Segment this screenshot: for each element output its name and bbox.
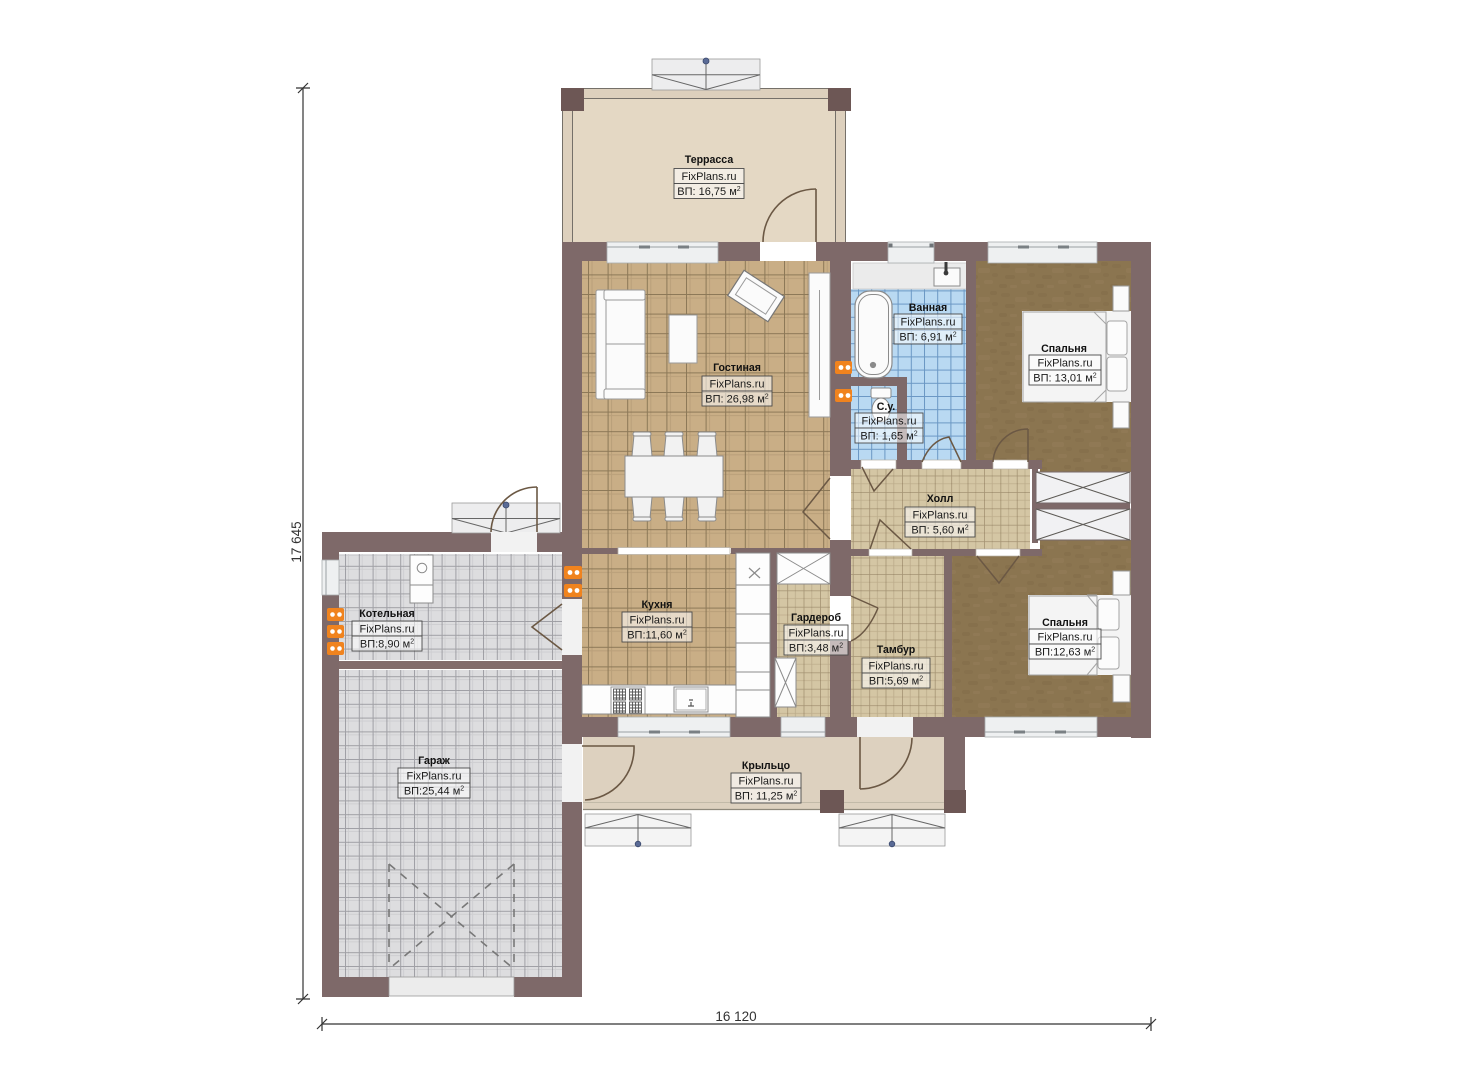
svg-text:Кухня: Кухня <box>642 599 673 611</box>
svg-text:ВП: 6,91 м2: ВП: 6,91 м2 <box>899 332 956 344</box>
svg-text:Гостиная: Гостиная <box>713 362 761 374</box>
svg-text:ВП:5,69 м2: ВП:5,69 м2 <box>869 676 923 688</box>
svg-text:Котельная: Котельная <box>359 608 414 620</box>
svg-text:16 120: 16 120 <box>715 1009 756 1024</box>
svg-text:ВП: 5,60 м2: ВП: 5,60 м2 <box>911 525 968 537</box>
svg-text:ВП:12,63 м2: ВП:12,63 м2 <box>1035 647 1095 659</box>
svg-text:Спальня: Спальня <box>1042 617 1088 629</box>
svg-text:Спальня: Спальня <box>1041 343 1087 355</box>
svg-text:ВП: 11,25 м2: ВП: 11,25 м2 <box>735 791 798 803</box>
svg-text:FixPlans.ru: FixPlans.ru <box>868 661 923 673</box>
svg-text:17 645: 17 645 <box>289 521 304 562</box>
svg-text:FixPlans.ru: FixPlans.ru <box>359 624 414 636</box>
svg-text:FixPlans.ru: FixPlans.ru <box>681 171 736 183</box>
svg-text:Ванная: Ванная <box>909 302 947 314</box>
svg-text:ВП:25,44 м2: ВП:25,44 м2 <box>404 786 464 798</box>
svg-text:ВП: 16,75 м2: ВП: 16,75 м2 <box>677 186 741 198</box>
svg-text:FixPlans.ru: FixPlans.ru <box>1037 358 1092 370</box>
svg-text:С.у.: С.у. <box>877 401 896 413</box>
svg-text:ВП: 26,98 м2: ВП: 26,98 м2 <box>705 394 769 406</box>
svg-text:ВП: 1,65 м2: ВП: 1,65 м2 <box>860 431 917 443</box>
svg-text:FixPlans.ru: FixPlans.ru <box>738 776 793 788</box>
svg-text:FixPlans.ru: FixPlans.ru <box>1037 632 1092 644</box>
svg-text:Террасса: Террасса <box>685 154 734 166</box>
svg-text:Гардероб: Гардероб <box>791 612 842 624</box>
svg-text:FixPlans.ru: FixPlans.ru <box>861 416 916 428</box>
svg-text:ВП:3,48 м2: ВП:3,48 м2 <box>789 643 843 655</box>
svg-text:FixPlans.ru: FixPlans.ru <box>788 628 843 640</box>
svg-text:FixPlans.ru: FixPlans.ru <box>912 510 967 522</box>
svg-text:Крыльцо: Крыльцо <box>742 760 791 772</box>
svg-text:FixPlans.ru: FixPlans.ru <box>900 317 955 329</box>
svg-text:Гараж: Гараж <box>418 755 450 767</box>
svg-text:FixPlans.ru: FixPlans.ru <box>406 771 461 783</box>
svg-text:ВП:11,60 м2: ВП:11,60 м2 <box>627 630 687 642</box>
svg-text:FixPlans.ru: FixPlans.ru <box>629 615 684 627</box>
svg-text:Холл: Холл <box>927 493 954 505</box>
svg-text:ВП:8,90 м2: ВП:8,90 м2 <box>360 639 414 651</box>
svg-text:FixPlans.ru: FixPlans.ru <box>709 379 764 391</box>
svg-text:Тамбур: Тамбур <box>877 644 916 656</box>
svg-text:ВП: 13,01 м2: ВП: 13,01 м2 <box>1033 373 1097 385</box>
